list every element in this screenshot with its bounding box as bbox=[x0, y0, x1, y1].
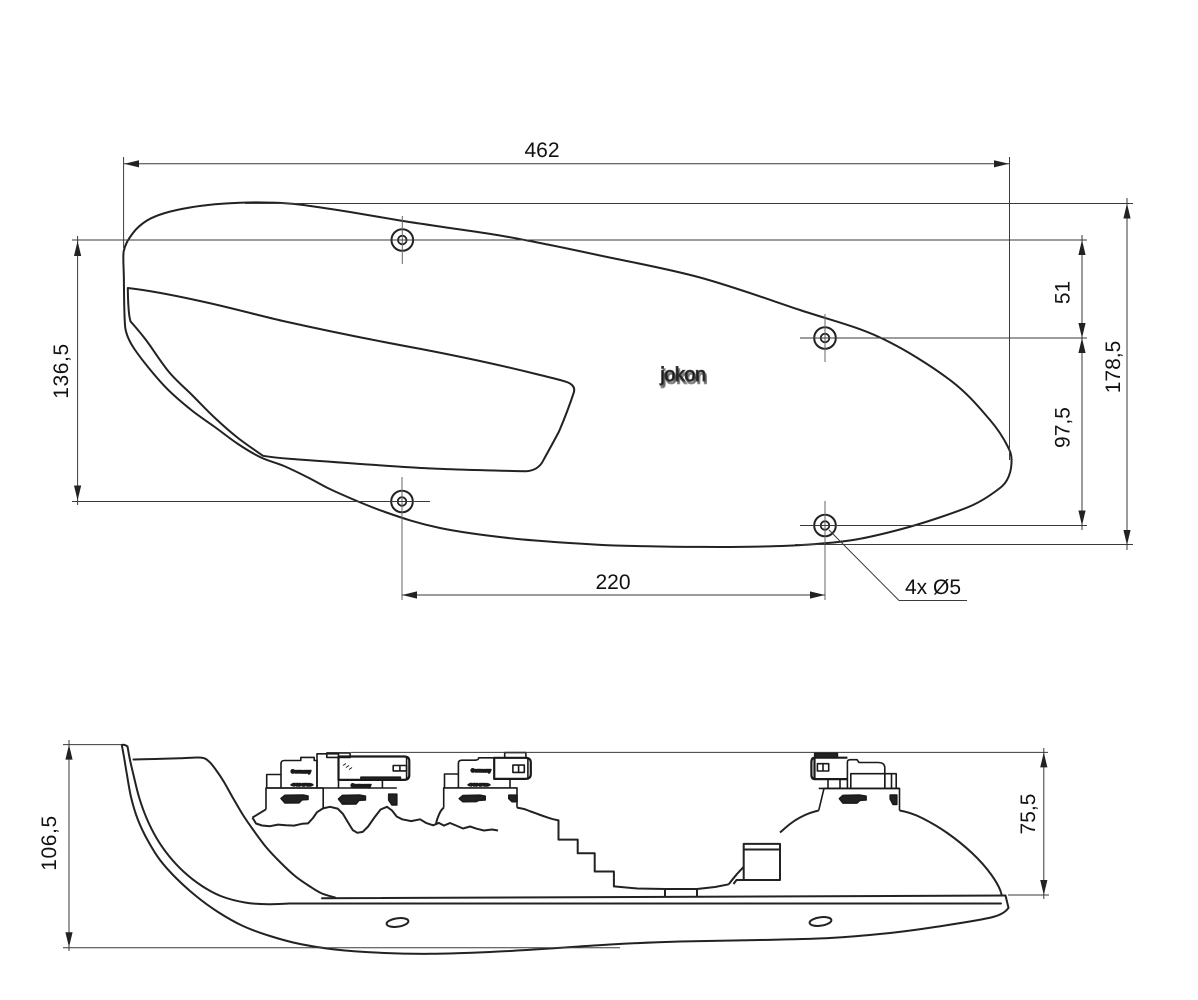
svg-text:106,5: 106,5 bbox=[38, 815, 61, 871]
svg-text:462: 462 bbox=[524, 139, 559, 162]
svg-text:Germany: Germany bbox=[291, 769, 311, 774]
svg-text:51: 51 bbox=[1052, 281, 1075, 304]
svg-text:Germany: Germany bbox=[351, 783, 371, 788]
svg-text:Germany: Germany bbox=[471, 768, 491, 773]
svg-text:<T4W-SFS1>: <T4W-SFS1> bbox=[468, 783, 490, 787]
svg-text:97,5: 97,5 bbox=[1052, 407, 1075, 448]
svg-text:178,5: 178,5 bbox=[1102, 341, 1125, 394]
svg-text:136,5: 136,5 bbox=[50, 343, 73, 399]
svg-text:jokon: jokon bbox=[659, 364, 705, 386]
svg-text:220: 220 bbox=[595, 571, 630, 594]
svg-text:75,5: 75,5 bbox=[1017, 794, 1040, 835]
svg-text:<T4W-SFS1>: <T4W-SFS1> bbox=[291, 783, 313, 787]
svg-text:4x Ø5: 4x Ø5 bbox=[905, 576, 961, 599]
